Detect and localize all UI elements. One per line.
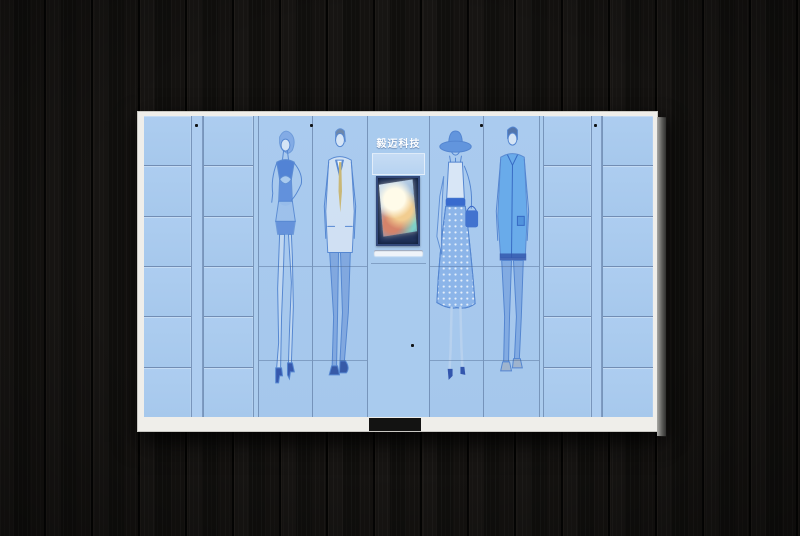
small-locker-door	[144, 368, 191, 417]
center-console: 毅迈科技	[367, 116, 429, 417]
lock-dot	[480, 124, 483, 127]
figure-door-man-suit	[312, 116, 367, 417]
small-locker-door	[204, 317, 253, 367]
door-seam	[313, 266, 367, 267]
small-locker-door	[204, 267, 253, 317]
cabinet-front: 毅迈科技	[144, 116, 653, 417]
small-locker-door	[144, 217, 191, 267]
door-seam	[259, 360, 312, 361]
door-seam	[484, 360, 539, 361]
tray-slot	[374, 250, 423, 256]
door-seam	[430, 360, 483, 361]
small-locker-door	[204, 166, 253, 216]
small-locker-door	[144, 166, 191, 216]
small-locker-column-1	[144, 116, 191, 417]
console-door-seam	[371, 263, 426, 264]
sign-panel	[372, 153, 425, 175]
small-locker-door	[544, 217, 591, 267]
kiosk-screen	[376, 176, 420, 246]
small-locker-door	[603, 267, 653, 317]
lock-dot	[310, 124, 313, 127]
console-lock-dot	[411, 344, 414, 347]
small-locker-door	[544, 116, 591, 166]
locker-cabinet: 毅迈科技	[137, 111, 658, 432]
small-locker-door	[544, 368, 591, 417]
cabinet-side-panel	[657, 117, 666, 436]
small-locker-door	[603, 317, 653, 367]
small-locker-door	[544, 317, 591, 367]
frame-strip-left	[191, 116, 203, 417]
small-locker-door	[544, 267, 591, 317]
small-locker-door	[603, 116, 653, 166]
small-locker-door	[603, 166, 653, 216]
lock-dot	[594, 124, 597, 127]
brand-sign: 毅迈科技	[368, 135, 429, 150]
small-locker-door	[144, 116, 191, 166]
figure-door-man-jacket	[483, 116, 539, 417]
door-seam	[430, 266, 483, 267]
figure-door-woman-hat	[429, 116, 483, 417]
small-locker-door	[603, 368, 653, 417]
small-locker-door	[144, 317, 191, 367]
frame-strip-right	[591, 116, 602, 417]
small-locker-door	[204, 116, 253, 166]
small-locker-door	[204, 368, 253, 417]
door-seam	[259, 266, 312, 267]
small-locker-door	[544, 166, 591, 216]
small-locker-column-4	[602, 116, 653, 417]
small-locker-door	[603, 217, 653, 267]
small-locker-door	[204, 217, 253, 267]
small-locker-column-3	[543, 116, 591, 417]
small-locker-door	[144, 267, 191, 317]
small-locker-column-2	[203, 116, 253, 417]
screen-display	[379, 179, 417, 236]
base-notch	[369, 418, 421, 431]
figure-door-woman-dress	[258, 116, 312, 417]
door-seam	[313, 360, 367, 361]
lock-dot	[195, 124, 198, 127]
door-seam	[484, 266, 539, 267]
